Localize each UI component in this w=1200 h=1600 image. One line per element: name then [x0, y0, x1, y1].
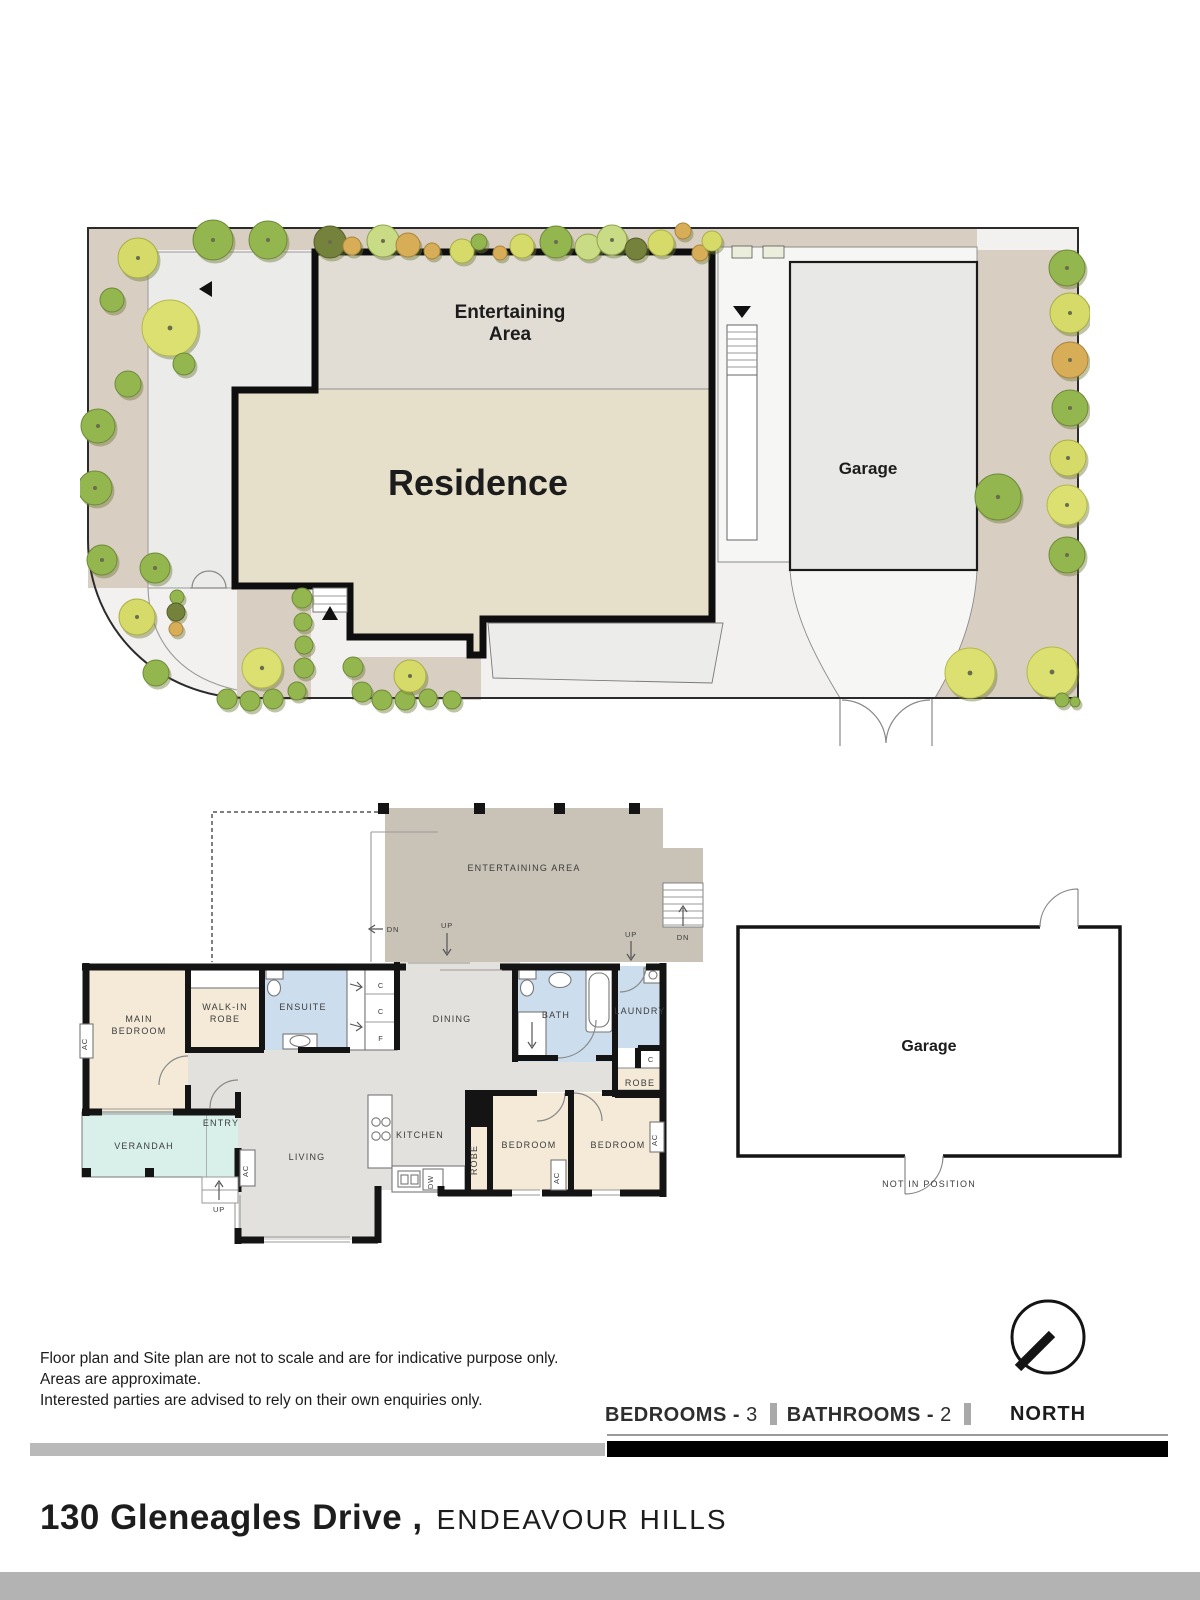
site-entertaining-label-2: Area	[489, 324, 532, 345]
label-dining: DINING	[433, 1014, 472, 1024]
label-main-bedroom-1: MAIN	[125, 1014, 152, 1024]
label-c3: C	[648, 1055, 654, 1064]
label-up-1: UP	[441, 921, 453, 930]
label-plan-garage: Garage	[901, 1038, 956, 1055]
site-plan: Entertaining Area Residence Garage	[80, 215, 1090, 760]
address-street: 130 Gleneagles Drive ,	[40, 1498, 423, 1537]
entry-steps	[202, 1177, 238, 1203]
label-not-in-position: NOT IN POSITION	[882, 1179, 976, 1189]
disclaimer: Floor plan and Site plan are not to scal…	[40, 1348, 620, 1411]
address: 130 Gleneagles Drive ,ENDEAVOUR HILLS	[40, 1498, 728, 1538]
bathrooms-label: BATHROOMS -	[787, 1404, 934, 1426]
label-ac-1: AC	[80, 1038, 89, 1050]
property-stats: BEDROOMS - 3BATHROOMS - 2	[605, 1403, 1025, 1428]
label-c1: C	[378, 981, 384, 990]
bedrooms-value: 3	[746, 1404, 758, 1426]
label-robe-2: ROBE	[625, 1078, 655, 1088]
site-residence-label: Residence	[388, 462, 568, 503]
label-bedroom-1: BEDROOM	[502, 1140, 557, 1150]
stats-underline	[607, 1434, 1168, 1436]
label-ac-3: AC	[552, 1172, 561, 1184]
north-label: NORTH	[1000, 1403, 1096, 1426]
label-dn-1: DN	[387, 925, 399, 934]
label-c2: C	[378, 1007, 384, 1016]
label-up-2: UP	[625, 930, 637, 939]
label-living: LIVING	[289, 1152, 326, 1162]
label-bath: BATH	[542, 1010, 570, 1020]
site-entertaining-label-1: Entertaining	[455, 302, 566, 323]
label-ensuite: ENSUITE	[279, 1002, 326, 1012]
label-wir-2: ROBE	[210, 1014, 240, 1024]
address-suburb: ENDEAVOUR HILLS	[437, 1504, 728, 1535]
driveway-gate	[840, 698, 932, 747]
site-garage-label: Garage	[839, 459, 898, 478]
plan-entertaining	[385, 808, 703, 962]
disclaimer-line-2: Areas are approximate.	[40, 1369, 620, 1390]
label-robe-nook: ROBE	[469, 1145, 479, 1175]
bedrooms-label: BEDROOMS -	[605, 1404, 740, 1426]
robe-nook-wall	[465, 1093, 490, 1127]
label-ac-4: AC	[650, 1134, 659, 1146]
label-bedroom-2: BEDROOM	[591, 1140, 646, 1150]
site-stairs	[727, 306, 757, 540]
stats-separator-2	[964, 1403, 971, 1425]
pergola-dashed-outline	[212, 812, 385, 962]
label-laundry: LAUNDRY	[614, 1006, 665, 1016]
label-f: F	[378, 1034, 383, 1043]
site-garage	[790, 262, 977, 570]
label-dn-2: DN	[677, 933, 689, 942]
label-main-bedroom-2: BEDROOM	[112, 1026, 167, 1036]
north-compass	[1008, 1297, 1088, 1377]
label-verandah: VERANDAH	[114, 1141, 174, 1151]
gray-bar	[30, 1443, 605, 1456]
stats-separator	[770, 1403, 777, 1425]
plan-main-bedroom	[86, 966, 188, 1112]
label-entry: ENTRY	[203, 1118, 239, 1128]
floor-plan: ENTERTAINING AREA MAIN BEDROOM WALK-IN R…	[75, 780, 1125, 1260]
label-ac-2: AC	[241, 1165, 250, 1177]
black-bar	[607, 1441, 1168, 1457]
page: Entertaining Area Residence Garage	[0, 0, 1200, 1600]
label-kitchen: KITCHEN	[396, 1130, 444, 1140]
label-dw: DW	[426, 1175, 435, 1189]
label-up-3: UP	[213, 1205, 225, 1214]
label-wir-1: WALK-IN	[202, 1002, 248, 1012]
label-entertaining: ENTERTAINING AREA	[467, 863, 580, 873]
disclaimer-line-1: Floor plan and Site plan are not to scal…	[40, 1348, 620, 1369]
site-apron	[488, 623, 723, 683]
deck-stairs	[663, 883, 703, 927]
bathrooms-value: 2	[940, 1404, 952, 1426]
bottom-bar	[0, 1572, 1200, 1600]
disclaimer-line-3: Interested parties are advised to rely o…	[40, 1390, 620, 1411]
